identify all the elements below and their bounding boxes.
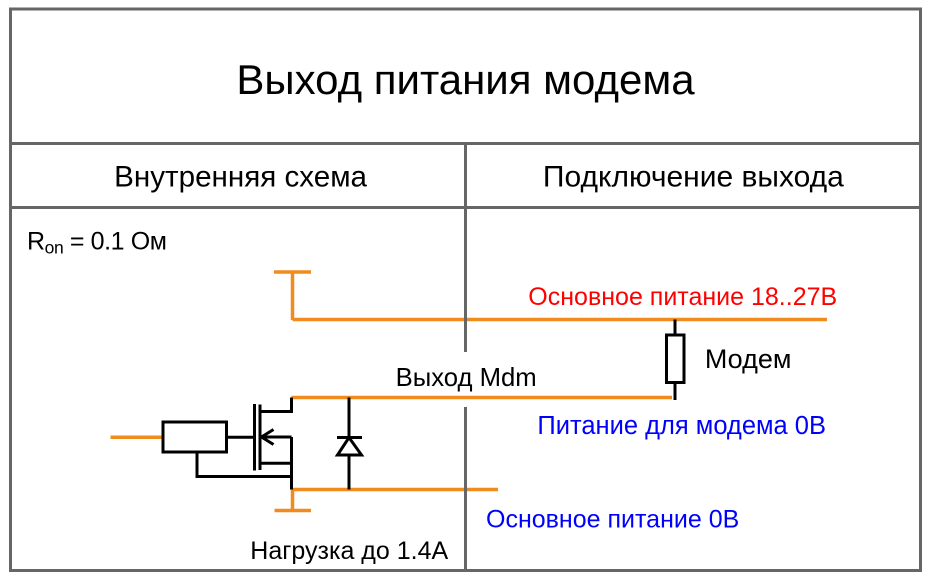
- svg-text:Модем: Модем: [705, 344, 792, 374]
- svg-text:Выход питания модема: Выход питания модема: [236, 56, 695, 103]
- svg-text:Основное питание 18..27В: Основное питание 18..27В: [528, 283, 837, 311]
- svg-text:Внутренняя схема: Внутренняя схема: [114, 161, 367, 194]
- svg-text:Выход Mdm: Выход Mdm: [396, 364, 537, 392]
- svg-text:Подключение выхода: Подключение выхода: [543, 161, 844, 194]
- svg-text:Нагрузка до 1.4А: Нагрузка до 1.4А: [250, 537, 448, 565]
- svg-text:Основное питание 0В: Основное питание 0В: [486, 506, 739, 534]
- svg-text:Питание для модема 0В: Питание для модема 0В: [537, 412, 826, 440]
